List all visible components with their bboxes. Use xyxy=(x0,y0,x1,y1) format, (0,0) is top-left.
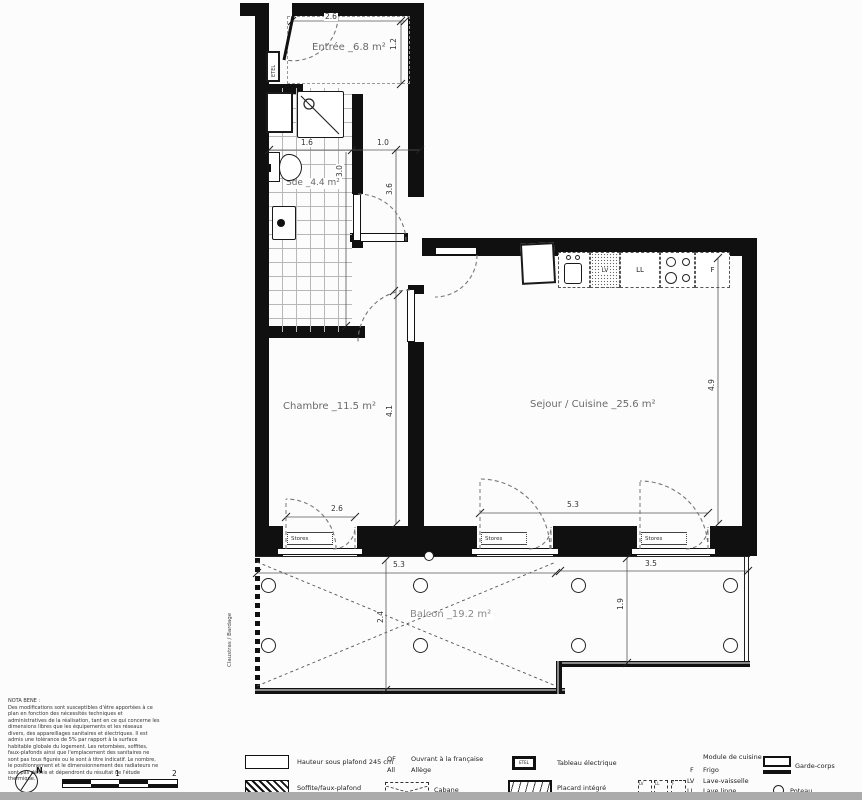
plan-linework xyxy=(0,0,862,800)
floor-plan: ETEL LV LL F Stores Stores Stores xyxy=(0,0,862,800)
dim-chambre-height: 4.1 xyxy=(386,404,394,418)
dim-hall-height: 3.6 xyxy=(386,182,394,196)
door-arcs xyxy=(285,17,708,549)
dimension-ticks xyxy=(253,17,752,694)
dim-hall-width: 1.0 xyxy=(376,139,390,147)
dim-entree-depth: 1.2 xyxy=(390,37,398,51)
dimension-lines xyxy=(257,21,748,690)
dim-entree-width: 2.6 xyxy=(324,13,338,21)
dim-balcon-left-width: 5.3 xyxy=(392,561,406,569)
etel-label: ETEL xyxy=(270,64,278,78)
dim-sde-height: 3.0 xyxy=(336,164,344,178)
dim-balcon-left-depth: 2.4 xyxy=(377,610,385,624)
entry-door-leaf xyxy=(284,16,293,60)
claustras-label: Claustras / Bardage xyxy=(226,612,234,668)
compass-needle xyxy=(21,772,33,790)
dim-sejour-window: 5.3 xyxy=(566,501,580,509)
dim-balcon-right-depth: 1.9 xyxy=(617,597,625,611)
dim-balcon-right-width: 3.5 xyxy=(644,560,658,568)
balcony-cross xyxy=(257,562,556,686)
shower-diagonal xyxy=(301,96,339,134)
dim-sejour-height: 4.9 xyxy=(708,378,716,392)
dim-chambre-window: 2.6 xyxy=(330,505,344,513)
window-leaves xyxy=(286,479,708,549)
dim-sde-width: 1.6 xyxy=(300,139,314,147)
